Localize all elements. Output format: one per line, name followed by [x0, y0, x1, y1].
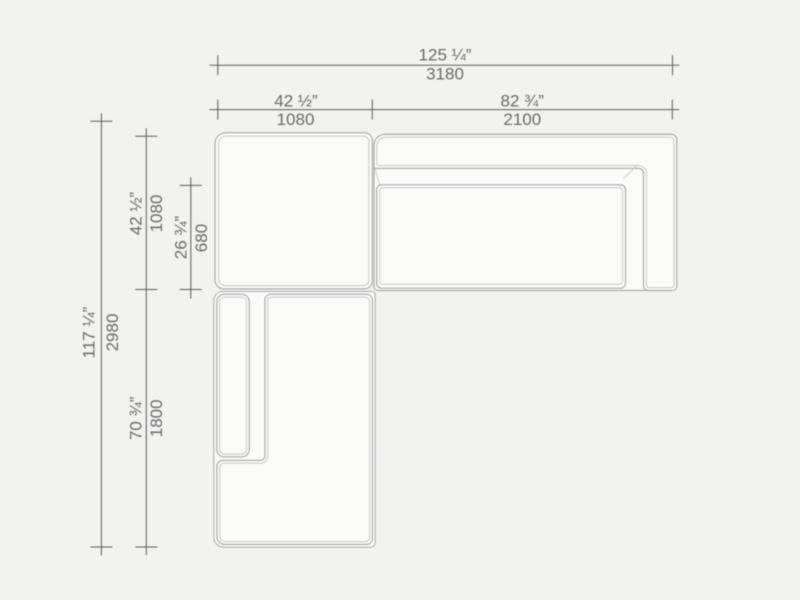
svg-text:2100: 2100 [503, 110, 541, 129]
svg-text:42 ½”: 42 ½” [127, 191, 146, 235]
svg-text:1800: 1800 [147, 399, 166, 437]
svg-text:125 ¼”: 125 ¼” [419, 46, 472, 65]
svg-text:82 ¾”: 82 ¾” [501, 92, 545, 111]
svg-text:1080: 1080 [147, 195, 166, 233]
svg-text:680: 680 [192, 224, 211, 252]
svg-text:1080: 1080 [277, 110, 315, 129]
svg-text:3180: 3180 [426, 65, 464, 84]
svg-text:117 ¼”: 117 ¼” [79, 306, 98, 358]
svg-text:70 ¾”: 70 ¾” [127, 396, 146, 440]
svg-text:42 ½”: 42 ½” [274, 92, 318, 111]
svg-text:26 ¾”: 26 ¾” [172, 215, 191, 259]
svg-text:2980: 2980 [103, 314, 122, 352]
